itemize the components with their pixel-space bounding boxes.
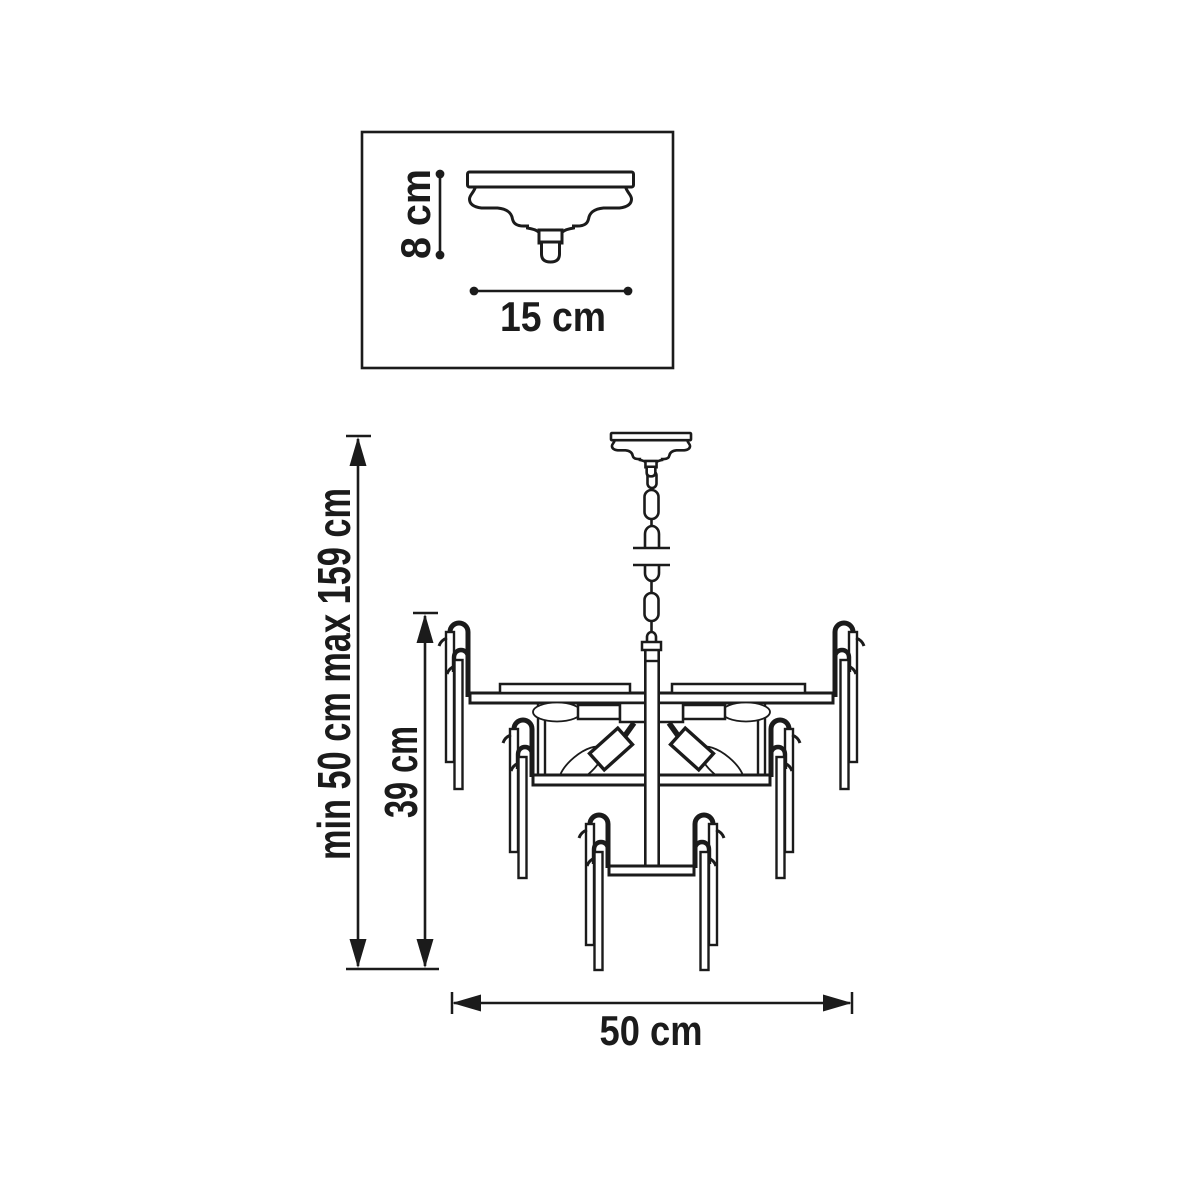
canopy-width-label: 15 cm (500, 293, 606, 340)
arrow-right-icon (823, 995, 852, 1012)
central-rod (642, 642, 661, 867)
pendant-bottom-left (579, 815, 608, 970)
ceiling-canopy (611, 433, 691, 476)
dim-fixture-height: 39 cm (375, 613, 438, 968)
width-label: 50 cm (600, 1007, 703, 1054)
pendant-bottom-right (695, 815, 724, 970)
dim-dot (624, 287, 633, 296)
arrow-down-icon (417, 939, 434, 968)
suspension-chain (633, 471, 670, 644)
canopy-detail-drawing (468, 172, 634, 262)
canopy-height-label: 8 cm (392, 169, 439, 259)
pendant-middle-left (503, 720, 532, 878)
rod-top-cap (642, 642, 661, 650)
bottom-tier-bar (609, 866, 694, 875)
arrow-up-icon (417, 614, 434, 643)
dim-canopy-height: 8 cm (392, 169, 444, 259)
dim-canopy-width: 15 cm (470, 287, 633, 340)
diagram-canvas: 8 cm 15 cm (0, 0, 1200, 1200)
top-plate-right (672, 684, 805, 693)
chandelier-dimension-diagram: 8 cm 15 cm (0, 0, 1200, 1200)
dim-width: 50 cm (452, 992, 852, 1054)
arrow-down-icon (350, 939, 367, 968)
side-bulb-right (722, 703, 770, 722)
dim-dot (470, 287, 479, 296)
pendant-middle-right (771, 720, 800, 878)
pendant-top-right (835, 623, 864, 789)
top-plate-left (500, 684, 630, 693)
side-bulb-left (533, 703, 581, 722)
pendant-top-left (439, 623, 468, 789)
canopy-detail-box: 8 cm 15 cm (362, 132, 673, 368)
chandelier-drawing (439, 433, 864, 970)
chain-break-symbol (633, 548, 670, 565)
arrow-up-icon (350, 437, 367, 466)
dim-overall-height: min 50 cm max 159 cm (308, 436, 371, 968)
arrow-left-icon (452, 995, 481, 1012)
overall-height-label: min 50 cm max 159 cm (308, 488, 360, 860)
fixture-height-label: 39 cm (375, 726, 427, 818)
